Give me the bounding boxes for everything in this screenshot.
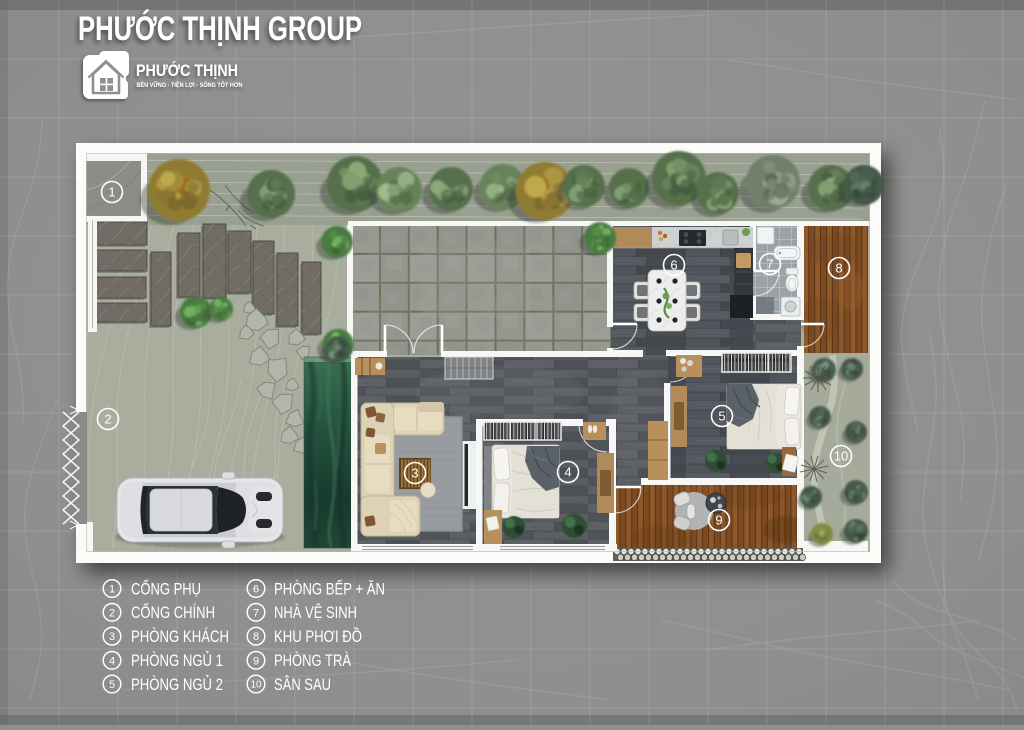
svg-text:7: 7 (766, 257, 773, 272)
svg-text:PHÒNG TRÀ: PHÒNG TRÀ (274, 651, 351, 670)
svg-text:PHÒNG NGỦ 2: PHÒNG NGỦ 2 (131, 675, 223, 694)
svg-text:KHU PHƠI ĐỒ: KHU PHƠI ĐỒ (274, 627, 362, 646)
svg-text:PHƯỚC THỊNH GROUP: PHƯỚC THỊNH GROUP (78, 10, 362, 48)
svg-text:3: 3 (109, 631, 115, 643)
svg-text:PHÒNG BẾP + ĂN: PHÒNG BẾP + ĂN (274, 579, 385, 598)
svg-text:PHƯỚC THỊNH: PHƯỚC THỊNH (136, 61, 238, 80)
svg-text:5: 5 (109, 679, 115, 691)
svg-text:2: 2 (104, 412, 111, 427)
svg-text:PHÒNG NGỦ 1: PHÒNG NGỦ 1 (131, 651, 223, 670)
svg-text:7: 7 (253, 607, 259, 619)
svg-text:10: 10 (834, 449, 848, 464)
svg-text:6: 6 (253, 584, 259, 596)
svg-text:NHÀ VỆ SINH: NHÀ VỆ SINH (274, 603, 357, 622)
svg-text:10: 10 (250, 680, 262, 691)
svg-text:SÂN SAU: SÂN SAU (274, 675, 331, 694)
svg-text:CỔNG CHÍNH: CỔNG CHÍNH (131, 603, 215, 622)
svg-text:9: 9 (253, 655, 259, 667)
svg-text:4: 4 (564, 465, 571, 480)
svg-text:1: 1 (108, 185, 115, 200)
svg-text:8: 8 (835, 261, 842, 276)
svg-text:1: 1 (109, 584, 115, 596)
svg-text:CỔNG PHỤ: CỔNG PHỤ (131, 579, 201, 598)
svg-text:PHÒNG KHÁCH: PHÒNG KHÁCH (131, 627, 229, 646)
svg-text:9: 9 (715, 513, 722, 528)
svg-text:6: 6 (670, 258, 677, 273)
svg-text:3: 3 (411, 466, 418, 481)
svg-text:8: 8 (253, 631, 259, 643)
svg-text:5: 5 (718, 409, 725, 424)
svg-text:2: 2 (109, 607, 115, 619)
svg-text:4: 4 (109, 655, 115, 667)
